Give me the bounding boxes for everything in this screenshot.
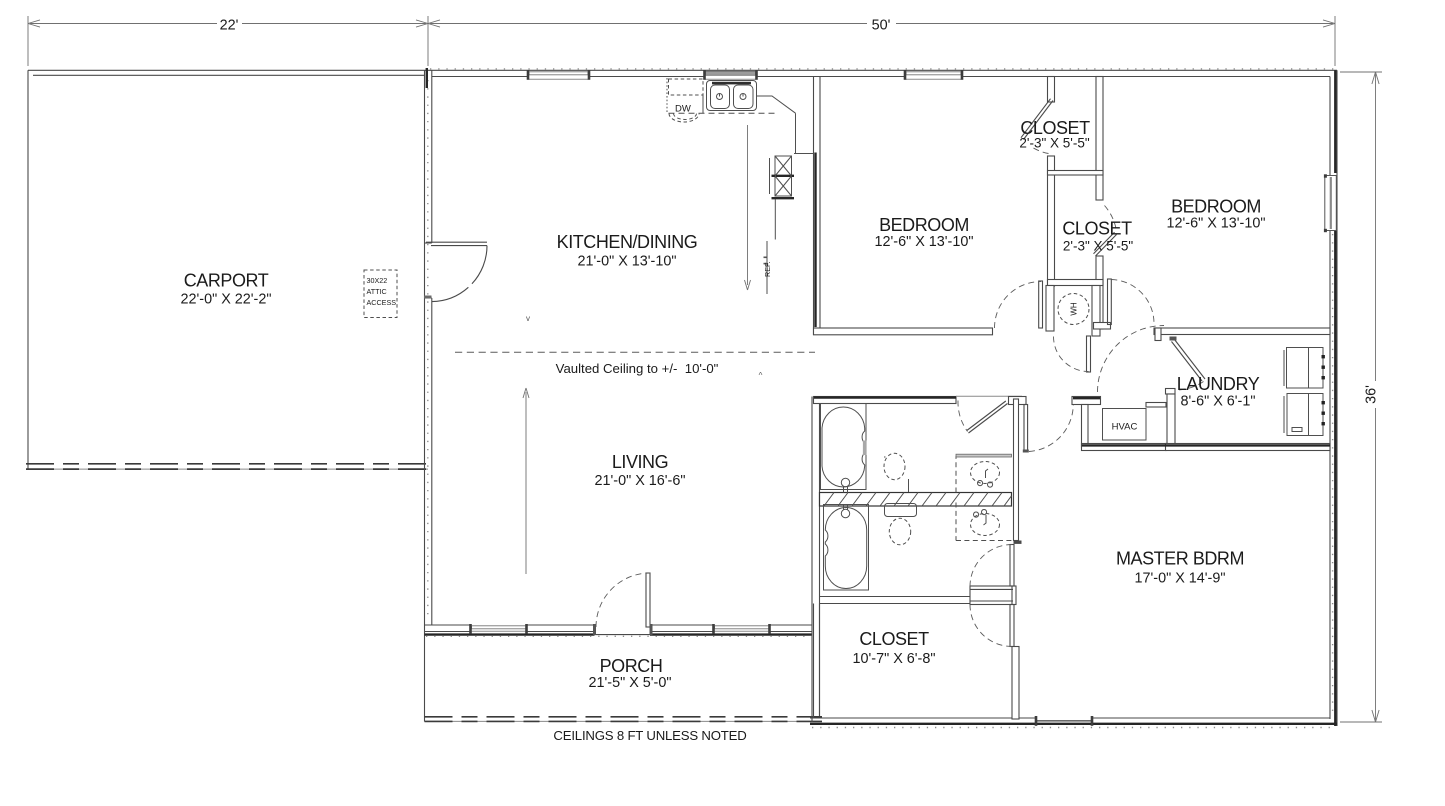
svg-text:12'-6" X 13'-10": 12'-6" X 13'-10" xyxy=(875,234,974,250)
svg-text:ATTIC: ATTIC xyxy=(367,287,387,296)
svg-text:HVAC: HVAC xyxy=(1112,422,1138,433)
svg-text:36': 36' xyxy=(1364,385,1380,404)
svg-text:CLOSET: CLOSET xyxy=(1062,219,1132,239)
svg-text:21'-5" X 5'-0": 21'-5" X 5'-0" xyxy=(589,675,672,691)
svg-text:REF.: REF. xyxy=(763,261,772,277)
svg-text:BEDROOM: BEDROOM xyxy=(879,215,969,235)
svg-text:17'-0" X 14'-9": 17'-0" X 14'-9" xyxy=(1135,571,1226,587)
svg-text:KITCHEN/DINING: KITCHEN/DINING xyxy=(557,232,698,252)
svg-text:CEILINGS 8 FT UNLESS NOTED: CEILINGS 8 FT UNLESS NOTED xyxy=(553,728,746,743)
svg-text:8'-6" X 6'-1": 8'-6" X 6'-1" xyxy=(1181,394,1256,410)
svg-text:30X22: 30X22 xyxy=(367,276,388,285)
svg-text:22': 22' xyxy=(220,18,239,34)
svg-text:BEDROOM: BEDROOM xyxy=(1171,197,1261,217)
svg-text:DW: DW xyxy=(675,104,691,115)
svg-text:v: v xyxy=(526,314,530,323)
svg-text:LIVING: LIVING xyxy=(612,452,668,472)
svg-text:22'-0" X 22'-2": 22'-0" X 22'-2" xyxy=(181,292,272,308)
svg-text:CLOSET: CLOSET xyxy=(859,629,929,649)
svg-text:CARPORT: CARPORT xyxy=(184,271,269,291)
svg-text:WH: WH xyxy=(1069,302,1078,316)
svg-text:50': 50' xyxy=(872,18,891,34)
svg-text:^: ^ xyxy=(759,371,763,380)
svg-text:12'-6" X 13'-10": 12'-6" X 13'-10" xyxy=(1167,215,1266,231)
svg-text:2'-3" X 5'-5": 2'-3" X 5'-5" xyxy=(1063,239,1133,254)
svg-text:21'-0" X 16'-6": 21'-0" X 16'-6" xyxy=(595,473,686,489)
svg-text:MASTER BDRM: MASTER BDRM xyxy=(1116,549,1244,569)
svg-text:ACCESS: ACCESS xyxy=(367,298,397,307)
svg-text:21'-0" X 13'-10": 21'-0" X 13'-10" xyxy=(578,254,677,270)
svg-text:Vaulted Ceiling to +/- 10'-0": Vaulted Ceiling to +/- 10'-0" xyxy=(556,361,719,376)
svg-text:LAUNDRY: LAUNDRY xyxy=(1177,374,1260,394)
svg-text:2'-3" X 5'-5": 2'-3" X 5'-5" xyxy=(1019,136,1089,151)
svg-text:PORCH: PORCH xyxy=(600,656,663,676)
svg-text:10'-7" X 6'-8": 10'-7" X 6'-8" xyxy=(853,651,936,667)
